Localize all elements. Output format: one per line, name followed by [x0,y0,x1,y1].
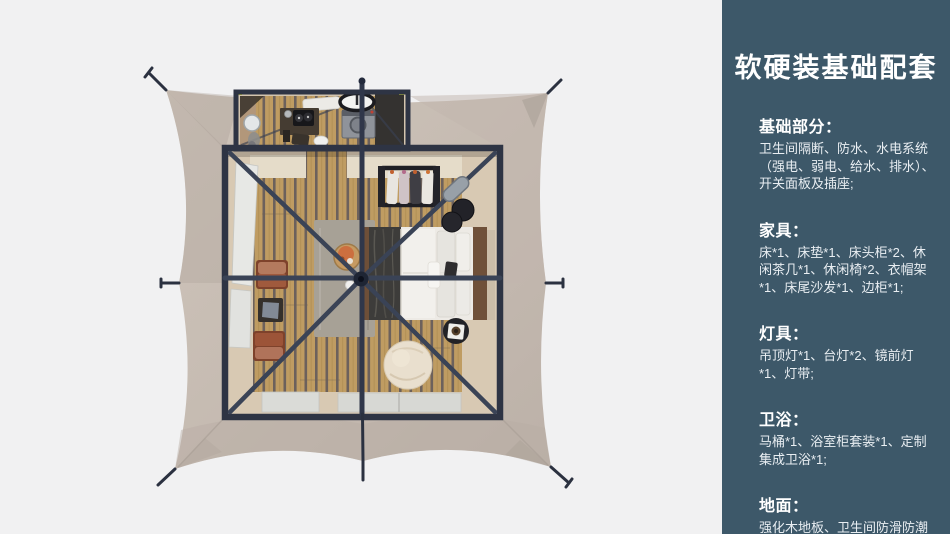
tea-table [258,298,283,322]
section-body: 卫生间隔断、防水、水电系统（强电、弱电、给水、排水）、开关面板及插座; [759,140,936,193]
panel-content: 基础部分： 卫生间隔断、防水、水电系统（强电、弱电、给水、排水）、开关面板及插座… [722,85,950,534]
section-body: 马桶*1、浴室柜套装*1、定制集成卫浴*1; [759,433,936,468]
section-header: 基础部分： [759,113,936,137]
roof-hub [354,272,369,287]
section-header: 卫浴： [759,406,936,430]
lounge-chair-1 [256,260,288,289]
section-header: 家具： [759,217,936,241]
bed [364,227,495,320]
info-panel: 软硬装基础配套 基础部分： 卫生间隔断、防水、水电系统（强电、弱电、给水、排水）… [722,0,950,534]
center-pole [359,78,366,462]
section-body: 床*1、床垫*1、床头柜*2、休闲茶几*1、休闲椅*2、衣帽架*1、床尾沙发*1… [759,244,936,297]
section-furniture: 家具： 床*1、床垫*1、床头柜*2、休闲茶几*1、休闲椅*2、衣帽架*1、床尾… [759,217,936,297]
section-floor: 地面： 强化木地板、卫生间防滑防潮石塑板; [759,492,936,534]
section-header: 地面： [759,492,936,516]
section-header: 灯具： [759,320,936,344]
oval-sink [340,94,374,111]
lounge-chair-2 [253,331,285,361]
section-basics: 基础部分： 卫生间隔断、防水、水电系统（强电、弱电、给水、排水）、开关面板及插座… [759,113,936,193]
tent-floorplan-render [0,0,722,534]
tray-stool [443,318,469,344]
section-bathroom: 卫浴： 马桶*1、浴室柜套装*1、定制集成卫浴*1; [759,406,936,468]
section-body: 吊顶灯*1、台灯*2、镜前灯*1、灯带; [759,347,936,382]
section-lighting: 灯具： 吊顶灯*1、台灯*2、镜前灯*1、灯带; [759,320,936,382]
bathroom [236,91,408,151]
panel-title: 软硬装基础配套 [722,46,950,85]
section-body: 强化木地板、卫生间防滑防潮石塑板; [759,519,936,534]
floorplan-illustration [0,0,722,534]
headboard [473,227,487,320]
pouf [384,341,432,389]
slide: 软硬装基础配套 基础部分： 卫生间隔断、防水、水电系统（强电、弱电、给水、排水）… [0,0,950,534]
washing-machine [342,110,375,138]
